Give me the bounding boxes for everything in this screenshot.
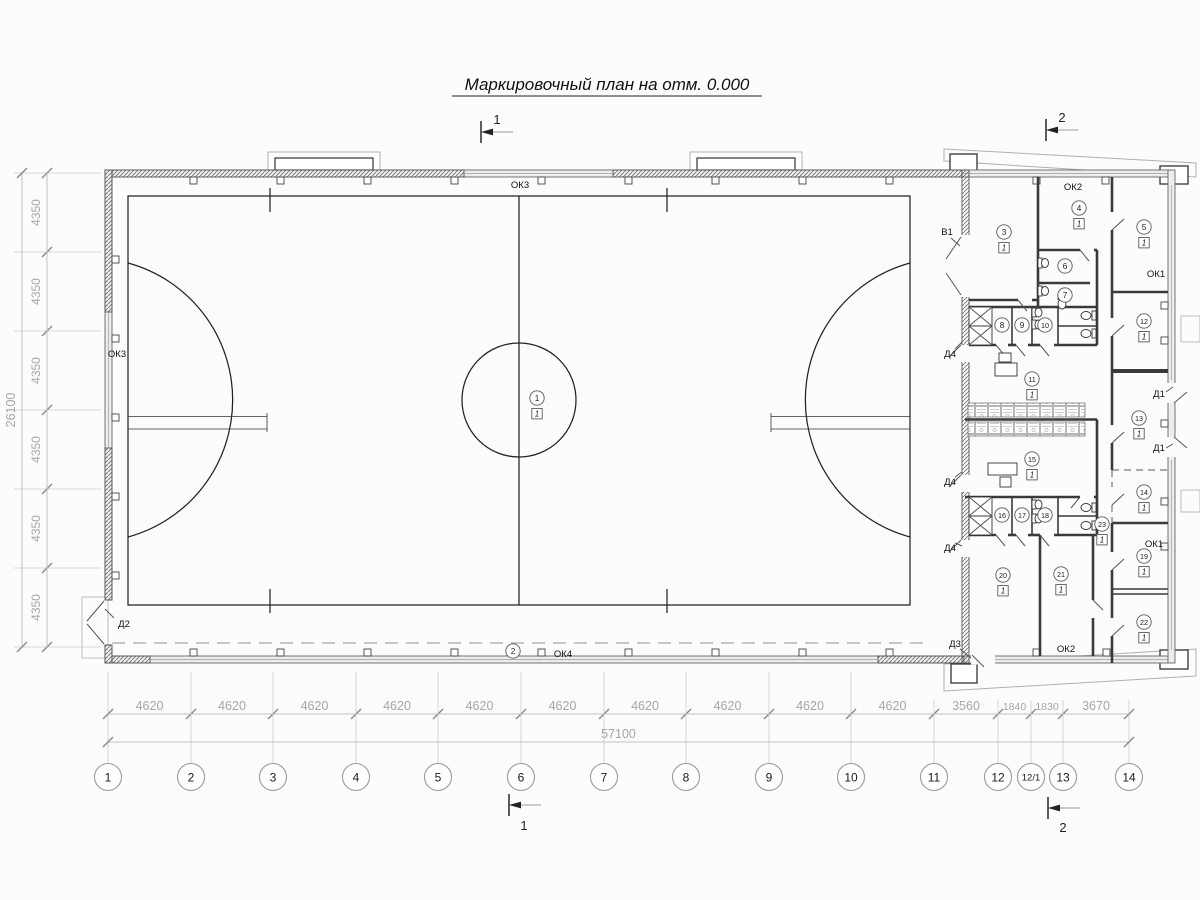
element-mark-label: В1 (941, 227, 953, 238)
floor-type: 1 (1001, 587, 1005, 596)
floor-type: 1 (1030, 471, 1034, 480)
toilet (1092, 329, 1096, 338)
element-mark-label: Д4 (944, 543, 956, 554)
toilet (1092, 503, 1096, 512)
floor-type: 1 (1077, 220, 1081, 229)
floor-type: 1 (1142, 333, 1146, 342)
element-mark-label: ОК1 (1147, 269, 1165, 280)
total-dimension-label: 57100 (601, 727, 636, 741)
grid-bubble-label: 14 (1122, 770, 1136, 784)
floor-type: 1 (1137, 430, 1141, 439)
dimension-label: 4350 (29, 199, 43, 226)
room-number: 12 (1140, 317, 1148, 326)
grid-bubble-label: 4 (353, 770, 360, 784)
room-number: 2 (511, 647, 516, 656)
room-number: 1 (535, 394, 540, 403)
room-number: 21 (1057, 570, 1065, 579)
room-number: 5 (1142, 223, 1147, 232)
floor-type: 1 (535, 410, 539, 419)
canopy-column (951, 664, 977, 683)
room-number: 8 (1000, 321, 1005, 330)
grid-bubble-label: 1 (105, 770, 112, 784)
dimension-label: 4350 (29, 436, 43, 463)
room-number: 6 (1063, 262, 1068, 271)
element-mark-label: ОК3 (108, 349, 126, 360)
grid-bubble-label: 3 (270, 770, 277, 784)
room-number: 22 (1140, 618, 1148, 627)
room-number: 4 (1077, 204, 1082, 213)
total-dimension-label: 26100 (4, 393, 18, 428)
svg-text:2: 2 (1058, 110, 1065, 125)
dimension-label: 3670 (1082, 699, 1110, 713)
element-mark-label: ОК2 (1057, 644, 1075, 655)
dimension-label: 4620 (796, 699, 824, 713)
grid-bubble-label: 12 (991, 770, 1005, 784)
dimension-label: 4620 (383, 699, 411, 713)
dimension-label: 1830 (1035, 701, 1059, 713)
grid-bubble-label: 2 (188, 770, 195, 784)
grid-bubble-label: 13 (1056, 770, 1070, 784)
floor-type: 1 (1030, 391, 1034, 400)
dimension-label: 4350 (29, 357, 43, 384)
grid-bubble-label: 12/1 (1022, 773, 1041, 784)
element-mark-label: ОК4 (554, 649, 572, 660)
floor-type: 1 (1100, 536, 1104, 545)
floor-type: 1 (1059, 586, 1063, 595)
floor-type: 1 (1142, 634, 1146, 643)
element-mark-label: Д3 (949, 639, 961, 650)
room-number: 18 (1041, 511, 1049, 520)
element-mark-label: Д1 (1153, 443, 1165, 454)
drawing-sheet: Маркировочный план на отм. 0.000 1 2 1 2 (0, 0, 1200, 900)
entrance-canopy (268, 152, 380, 170)
grid-bubble-label: 7 (601, 770, 608, 784)
dimension-label: 4620 (301, 699, 329, 713)
room-number: 19 (1140, 552, 1148, 561)
svg-text:1: 1 (493, 112, 500, 127)
desk (995, 363, 1017, 376)
toilet (1092, 311, 1096, 320)
dimension-label: 4350 (29, 278, 43, 305)
element-mark-label: ОК1 (1145, 539, 1163, 550)
grid-bubble-label: 6 (518, 770, 525, 784)
room-number: 17 (1018, 511, 1026, 520)
room-number: 15 (1028, 455, 1036, 464)
element-mark-label: Д1 (1153, 389, 1165, 400)
room-number: 16 (998, 511, 1006, 520)
room-number: 9 (1020, 321, 1025, 330)
entrance-canopy (690, 152, 802, 170)
floor-type: 1 (1002, 244, 1006, 253)
svg-text:2: 2 (1059, 820, 1066, 835)
desk (988, 463, 1017, 475)
dimension-label: 4620 (136, 699, 164, 713)
element-mark-label: ОК3 (511, 180, 529, 191)
element-mark-label: Д4 (944, 477, 956, 488)
svg-text:1: 1 (520, 818, 527, 833)
room-number: 10 (1041, 321, 1049, 330)
dimension-label: 4350 (29, 594, 43, 621)
grid-bubble-label: 8 (683, 770, 690, 784)
room-number: 23 (1098, 520, 1106, 529)
element-mark-label: ОК2 (1064, 182, 1082, 193)
room-number: 7 (1063, 291, 1068, 300)
dimension-label: 4620 (466, 699, 494, 713)
dimension-label: 4620 (218, 699, 246, 713)
element-mark-label: Д2 (118, 619, 130, 630)
floor-type: 1 (1142, 568, 1146, 577)
locker-row (968, 403, 1085, 417)
floor-plan-drawing: Маркировочный план на отм. 0.000 1 2 1 2 (0, 0, 1200, 900)
dimension-label: 4620 (879, 699, 907, 713)
room-number: 20 (999, 571, 1007, 580)
dimension-label: 4350 (29, 515, 43, 542)
dimension-label: 3560 (952, 699, 980, 713)
room-number: 14 (1140, 488, 1148, 497)
dimension-label: 4620 (714, 699, 742, 713)
dimension-label: 1840 (1003, 701, 1027, 713)
element-mark-label: Д4 (944, 349, 956, 360)
floor-type: 1 (1142, 504, 1146, 513)
room-number: 3 (1002, 228, 1007, 237)
grid-bubble-label: 10 (844, 770, 858, 784)
locker-row (968, 422, 1085, 436)
grid-bubble-label: 11 (928, 770, 941, 784)
room-number: 13 (1135, 414, 1143, 423)
floor-type: 1 (1142, 239, 1146, 248)
dimension-label: 4620 (631, 699, 659, 713)
grid-bubble-label: 5 (435, 770, 442, 784)
dimension-label: 4620 (549, 699, 577, 713)
page-title: Маркировочный план на отм. 0.000 (465, 75, 750, 94)
room-number: 11 (1028, 375, 1035, 384)
title-block: Маркировочный план на отм. 0.000 (452, 75, 762, 96)
grid-bubble-label: 9 (766, 770, 773, 784)
